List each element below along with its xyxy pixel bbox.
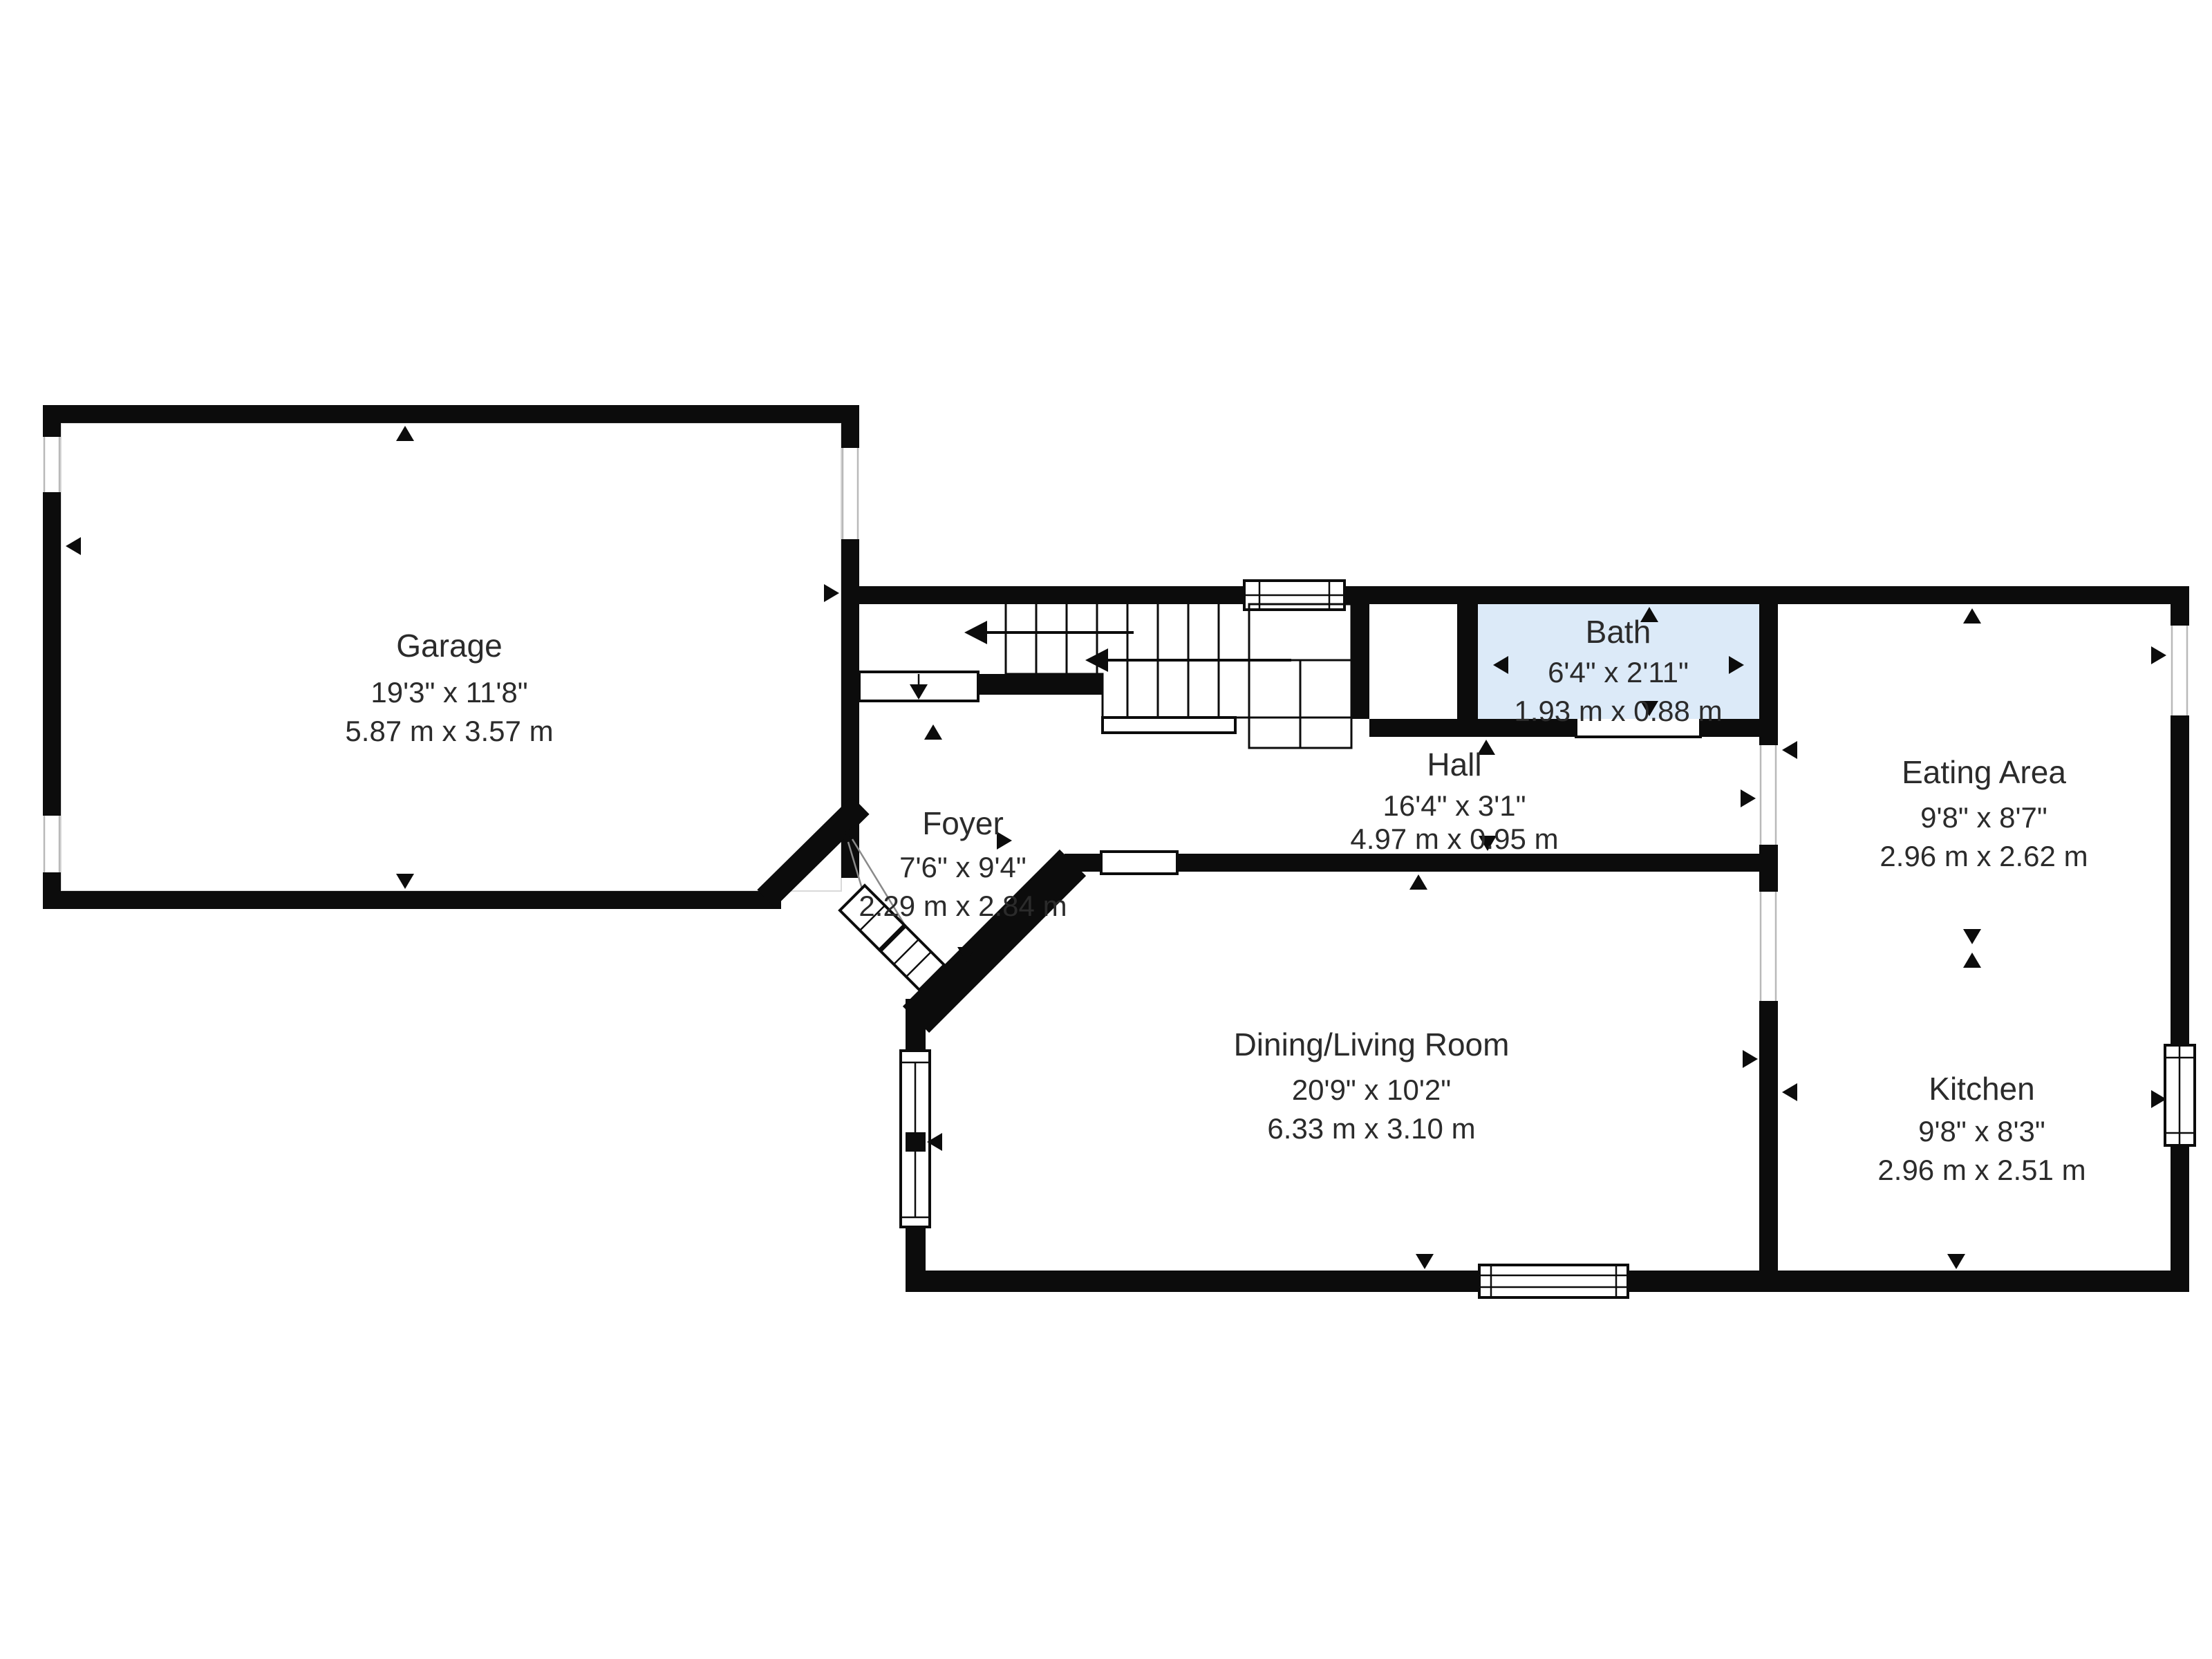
- room-size-imperial: 9'8" x 8'7": [1920, 801, 2047, 834]
- room-bath: Bath 6'4" x 2'11" 1.93 m x 0.88 m: [1457, 604, 1759, 737]
- room-size-metric: 2.96 m x 2.51 m: [1877, 1154, 2086, 1186]
- window-icon: [2165, 1045, 2195, 1145]
- stair-east-wall: [1351, 604, 1369, 719]
- floor-plan-page: Garage 19'3" x 11'8" 5.87 m x 3.57 m: [0, 0, 2212, 1659]
- floor-plan-canvas: Garage 19'3" x 11'8" 5.87 m x 3.57 m: [0, 0, 2212, 1659]
- window-icon: [1244, 581, 1344, 610]
- room-garage: Garage 19'3" x 11'8" 5.87 m x 3.57 m: [43, 405, 861, 909]
- stair-direction-arrow-icon: [964, 621, 987, 644]
- garage-left-wall-seg: [43, 405, 61, 437]
- foyer-diagonal-wall: [916, 863, 1073, 1020]
- room-size-metric: 6.33 m x 3.10 m: [1267, 1112, 1475, 1145]
- eating-kitchen-section: Eating Area 9'8" x 8'7" 2.96 m x 2.62 m …: [1759, 586, 2195, 1292]
- garage-top-wall: [43, 405, 859, 423]
- dimension-arrow-up-icon: [396, 426, 414, 441]
- room-size-imperial: 16'4" x 3'1": [1383, 789, 1526, 822]
- section-west-wall-seg: [1759, 1001, 1778, 1271]
- dimension-arrow-up-icon: [1409, 874, 1427, 890]
- garage-bottom-wall: [43, 891, 781, 909]
- section-east-wall-seg: [2171, 1145, 2189, 1292]
- garage-right-wall-seg: [841, 405, 859, 448]
- room-label-kitchen: Kitchen: [1929, 1071, 2034, 1107]
- dining-west-wall-seg: [906, 999, 926, 1051]
- under-stair-wall: [978, 674, 1103, 695]
- stairs: [964, 604, 1369, 748]
- dimension-arrow-left-icon: [1782, 1083, 1797, 1101]
- room-label-eating-area: Eating Area: [1902, 754, 2066, 790]
- hall-south-wall-seg: [1065, 854, 1101, 872]
- room-label-garage: Garage: [396, 628, 502, 664]
- dimension-arrow-right-icon: [1741, 789, 1756, 807]
- door-opening-sill: [1103, 718, 1235, 733]
- room-size-metric: 4.97 m x 0.95 m: [1350, 823, 1558, 855]
- section-east-wall-seg: [2171, 586, 2189, 626]
- dimension-arrow-hourglass-icon: [1963, 929, 1981, 968]
- dimension-arrow-down-icon: [1416, 1254, 1434, 1269]
- window-icon: [1479, 1265, 1628, 1297]
- dimension-arrow-down-icon: [1947, 1254, 1965, 1269]
- window-icon: [901, 1051, 930, 1227]
- garage-left-wall-seg: [43, 492, 61, 816]
- dimension-arrow-left-icon: [1782, 741, 1797, 759]
- room-label-foyer: Foyer: [922, 805, 1004, 841]
- dimension-arrow-down-icon: [396, 874, 414, 889]
- room-size-imperial: 19'3" x 11'8": [371, 676, 527, 709]
- section-east-wall-seg: [2171, 715, 2189, 1045]
- room-hall: Hall 16'4" x 3'1" 4.97 m x 0.95 m: [1065, 718, 1778, 874]
- room-size-imperial: 7'6" x 9'4": [899, 851, 1027, 883]
- room-size-imperial: 20'9" x 10'2": [1292, 1074, 1451, 1106]
- room-foyer: Foyer 7'6" x 9'4" 2.29 m x 2.84 m: [840, 672, 1073, 1020]
- room-size-imperial: 9'8" x 8'3": [1918, 1115, 2045, 1147]
- top-exterior-wall: [859, 586, 2188, 604]
- room-label-bath: Bath: [1586, 614, 1651, 650]
- room-label-dining-living: Dining/Living Room: [1234, 1027, 1510, 1062]
- bath-west-wall: [1457, 604, 1478, 737]
- section-west-wall-seg: [1759, 845, 1778, 892]
- room-size-metric: 2.96 m x 2.62 m: [1880, 840, 2088, 872]
- room-size-imperial: 6'4" x 2'11": [1548, 656, 1689, 688]
- room-size-metric: 1.93 m x 0.88 m: [1514, 695, 1722, 727]
- dimension-arrow-up-icon: [1963, 608, 1981, 624]
- section-west-wall-seg: [1759, 604, 1778, 745]
- dimension-arrow-left-icon: [66, 537, 81, 555]
- dimension-arrow-right-icon: [824, 584, 839, 602]
- dimension-arrow-right-icon: [1743, 1050, 1758, 1068]
- room-label-hall: Hall: [1427, 747, 1481, 782]
- dimension-arrow-right-icon: [2151, 646, 2166, 664]
- room-size-metric: 2.29 m x 2.84 m: [859, 890, 1067, 922]
- room-size-metric: 5.87 m x 3.57 m: [345, 715, 553, 747]
- door-opening-sill: [1101, 852, 1177, 874]
- hall-south-wall-seg: [1177, 854, 1778, 872]
- dimension-arrow-up-icon: [924, 724, 942, 740]
